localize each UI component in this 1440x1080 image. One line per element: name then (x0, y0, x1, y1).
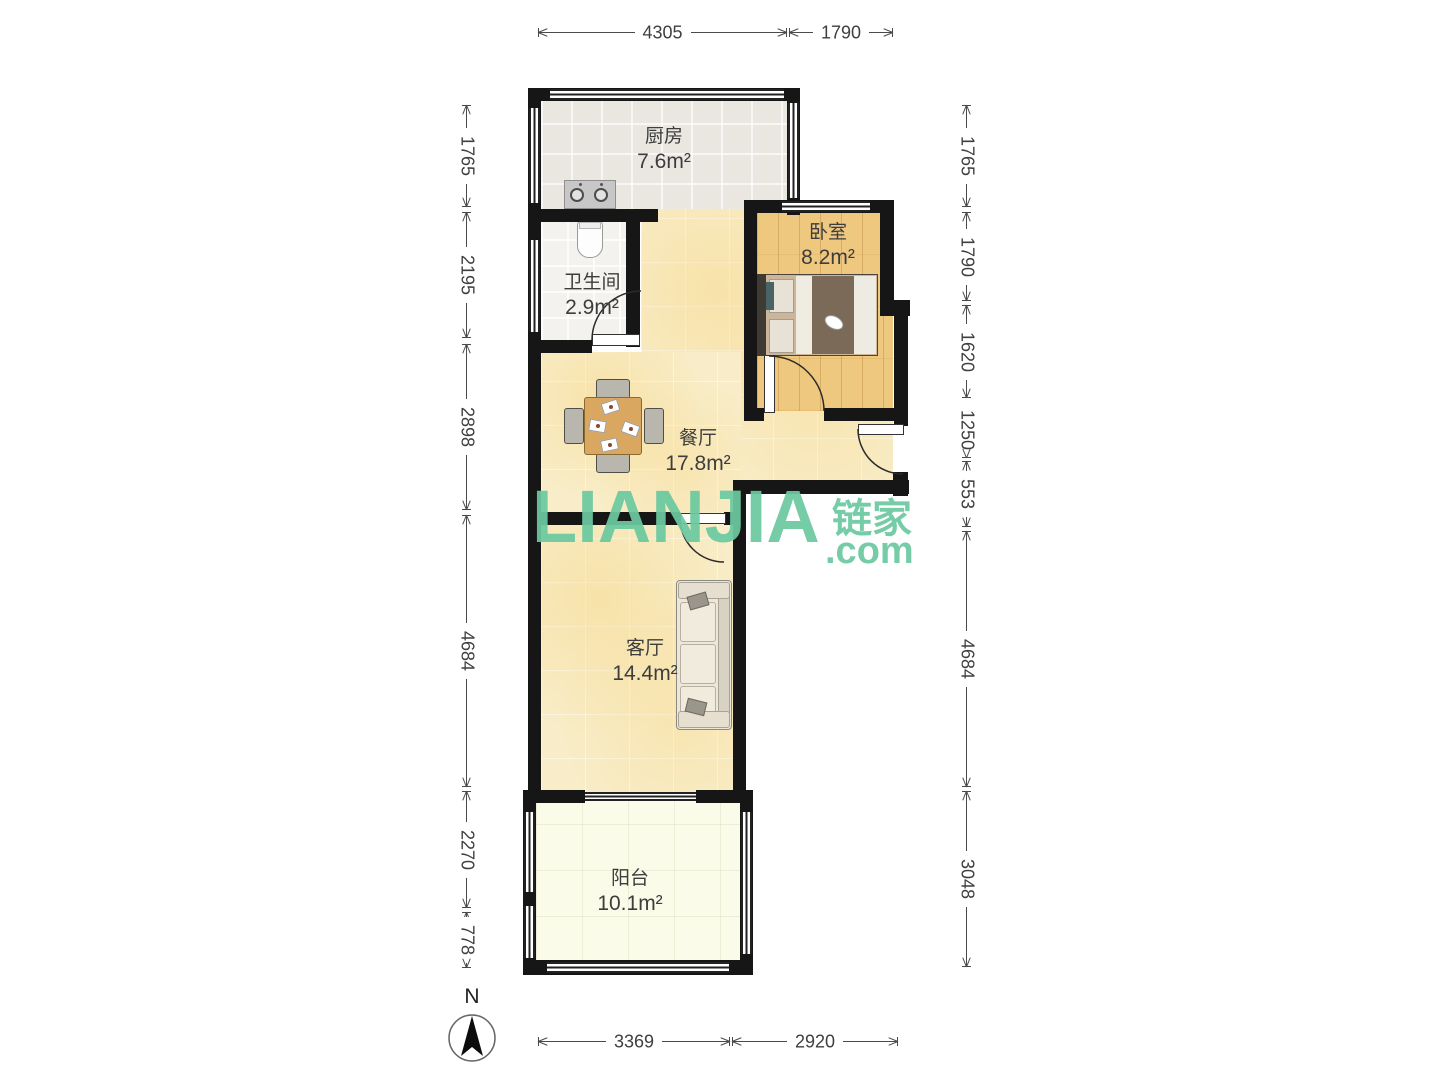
wall-bath-right (626, 215, 640, 347)
dim-value: 2195 (457, 247, 478, 303)
kitchen-area: 7.6m² (637, 149, 691, 175)
balcony-name: 阳台 (597, 867, 662, 891)
dim-top-1790: 1790 (789, 25, 893, 41)
dim-top-4305: 4305 (538, 25, 787, 41)
balcony-slider-threshold (585, 792, 696, 801)
dim-right-1620: 1620 (959, 305, 975, 398)
bed-accent-pillow (766, 282, 774, 310)
dim-bottom-3369: 3369 (538, 1034, 730, 1050)
bathroom-door-leaf (592, 334, 640, 346)
bedroom-door-leaf (764, 355, 775, 413)
compass-icon (442, 1008, 502, 1070)
bathroom-name: 卫生间 (563, 271, 620, 295)
dim-right-1790: 1790 (959, 212, 975, 301)
dim-bottom-2920: 2920 (732, 1034, 898, 1050)
dim-value: 1790 (957, 228, 978, 284)
dim-left-2195: 2195 (459, 212, 475, 338)
wall-living-right (733, 480, 746, 803)
dining-chair-bottom (596, 453, 630, 473)
floorplan-page: { "watermark": { "latin": "LIANJIA", "cj… (0, 0, 1440, 1080)
balcony-area: 10.1m² (597, 891, 662, 917)
bed-blanket-band (854, 276, 876, 354)
balcony-left-window-lower (524, 906, 535, 958)
dim-right-553: 553 (959, 461, 975, 527)
dim-value: 1765 (457, 128, 478, 184)
wall-bedroom-left (744, 200, 757, 421)
dim-left-2898: 2898 (459, 344, 475, 510)
bedroom-label: 卧室 8.2m² (801, 221, 855, 271)
plate-dot (596, 424, 600, 428)
dim-left-1765: 1765 (459, 105, 475, 207)
dining-chair-right (644, 408, 664, 444)
bed-sheet-band (796, 276, 812, 354)
bedroom-name: 卧室 (801, 221, 855, 245)
dim-left-2270: 2270 (459, 791, 475, 908)
kitchen-label: 厨房 7.6m² (637, 125, 691, 175)
dim-right-1250: 1250 (959, 402, 975, 458)
dim-value: 2270 (457, 821, 478, 877)
wall-bedroom-bottom-right (824, 408, 894, 421)
compass-north-label: N (442, 986, 502, 1008)
dim-value: 4684 (957, 631, 978, 687)
bed-pillow-bottom (769, 319, 794, 353)
sofa-backrest (718, 584, 730, 726)
wall-bedroom-right-lower (894, 312, 908, 426)
dim-value: 1250 (957, 402, 978, 458)
dim-value: 3369 (606, 1032, 662, 1053)
dim-right-1765: 1765 (959, 105, 975, 207)
dim-value: 2920 (787, 1032, 843, 1053)
balcony-bottom-window (547, 962, 729, 973)
kitchen-left-window (529, 108, 540, 203)
plate-dot (629, 427, 633, 431)
wall-bedroom-right-upper (880, 200, 894, 312)
wall-dining-living-divide-left (528, 512, 680, 525)
bed-headboard (756, 274, 766, 356)
wall-dining-living-divide-right (724, 512, 746, 525)
entry-door-leaf (858, 424, 904, 435)
wall-dining-bottom-right (733, 480, 909, 494)
stove-burner-left (570, 188, 584, 202)
living-area: 14.4m² (612, 661, 677, 687)
kitchen-name: 厨房 (637, 125, 691, 149)
north-compass: N (442, 986, 502, 1076)
bedroom-top-window (782, 201, 870, 212)
plate-dot (609, 405, 613, 409)
bedroom-area: 8.2m² (801, 245, 855, 271)
dining-chair-top (596, 379, 630, 399)
dim-right-3048: 3048 (959, 791, 975, 967)
dim-right-4684: 4684 (959, 531, 975, 787)
balcony-right-window (741, 812, 752, 954)
dim-value: 4684 (457, 623, 478, 679)
dim-left-778: 778 (459, 912, 475, 968)
stove-knob (600, 183, 603, 186)
kitchen-top-window (550, 89, 784, 100)
dim-value: 553 (957, 471, 978, 517)
stove-knob (579, 183, 582, 186)
dim-value: 778 (457, 917, 478, 963)
living-name: 客厅 (612, 637, 677, 661)
balcony-label: 阳台 10.1m² (597, 867, 662, 917)
dim-value: 4305 (634, 23, 690, 44)
dining-chair-left (564, 408, 584, 444)
dim-value: 1765 (957, 128, 978, 184)
balcony-left-window-upper (524, 812, 535, 892)
wall-bath-bottom (528, 340, 592, 353)
dining-area: 17.8m² (665, 451, 730, 477)
dim-value: 1790 (813, 23, 869, 44)
kitchen-right-window (788, 103, 799, 198)
bathroom-label: 卫生间 2.9m² (563, 271, 620, 321)
sofa-cushion (680, 644, 716, 684)
stove-burner-right (594, 188, 608, 202)
wall-bedroom-bottom-left (744, 408, 764, 421)
toilet-tank (579, 222, 601, 229)
dim-left-4684: 4684 (459, 515, 475, 787)
bathroom-area: 2.9m² (563, 295, 620, 321)
plate-dot (608, 443, 612, 447)
dining-label: 餐厅 17.8m² (665, 427, 730, 477)
dim-value: 2898 (457, 399, 478, 455)
bathroom-left-window (529, 240, 540, 332)
dim-value: 1620 (957, 323, 978, 379)
dim-value: 3048 (957, 851, 978, 907)
living-door-leaf (680, 513, 726, 524)
dining-name: 餐厅 (665, 427, 730, 451)
living-label: 客厅 14.4m² (612, 637, 677, 687)
watermark-suffix: .com (825, 530, 914, 573)
